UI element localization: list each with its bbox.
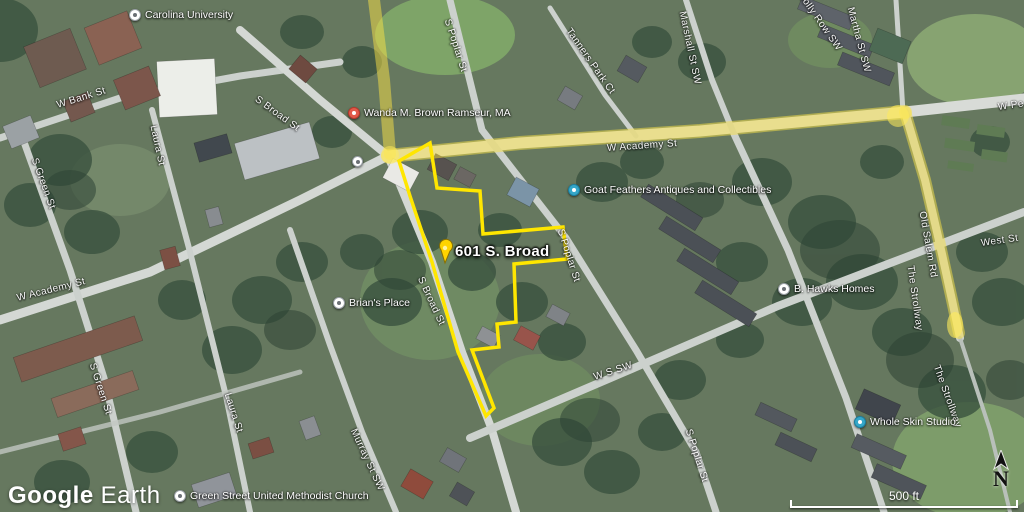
scale-label: 500 ft [790,489,1018,503]
logo-earth-text: Earth [101,482,161,509]
transit-stop-icon[interactable] [352,156,363,167]
poi-marker-wanda-ramseur[interactable] [348,107,360,119]
placemark-label-601-s-broad[interactable]: 601 S. Broad [455,243,549,260]
google-earth-viewport: W Bank St S Green St Laura St S Broad St… [0,0,1024,512]
scale-line [790,506,1018,508]
poi-label[interactable]: Whole Skin Studio [870,416,956,428]
poi-marker-b-hawks-homes[interactable] [778,283,790,295]
poi-marker-brians-place[interactable] [333,297,345,309]
logo-google-text: Google [8,482,94,509]
poi-marker-goat-feathers[interactable] [568,184,580,196]
poi-label[interactable]: Goat Feathers Antiques and Collectibles [584,184,771,196]
north-letter: N [986,470,1016,488]
poi-marker-green-street-umc[interactable] [174,490,186,502]
scale-bar: 500 ft [790,489,1018,508]
poi-label[interactable]: Brian's Place [349,297,410,309]
north-compass[interactable]: N [986,450,1016,488]
poi-label[interactable]: Wanda M. Brown Ramseur, MA [364,107,511,119]
poi-label[interactable]: Green Street United Methodist Church [190,490,369,502]
poi-marker-carolina-university[interactable] [129,9,141,21]
google-earth-logo: GoogleEarth [8,482,161,510]
poi-label[interactable]: Carolina University [145,9,233,21]
poi-marker-whole-skin-studio[interactable] [854,416,866,428]
poi-label[interactable]: B. Hawks Homes [794,283,875,295]
